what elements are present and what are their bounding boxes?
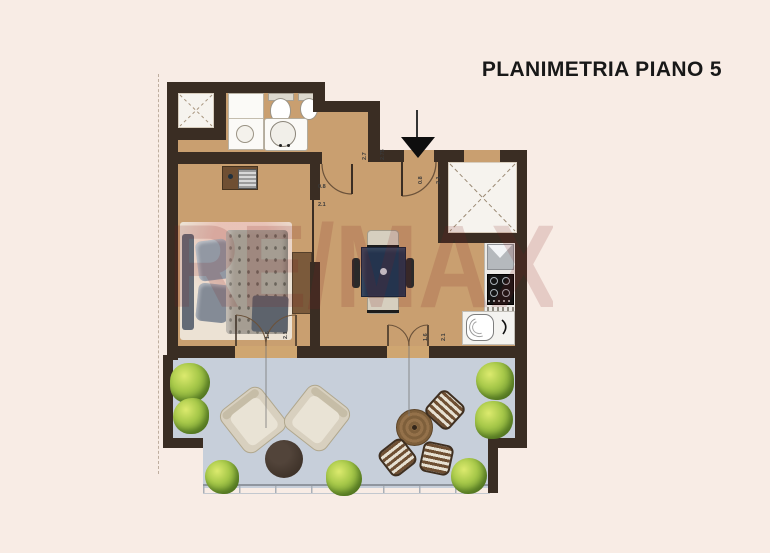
stove-burner-2 — [502, 277, 510, 285]
terrace-floor — [173, 358, 515, 448]
dining-table-centerpiece-dot — [380, 268, 387, 275]
stove-burner-1 — [490, 277, 498, 285]
wall-bottom-a — [167, 346, 235, 358]
washbasin-tap-dot — [279, 144, 282, 147]
dresser-knob-dot — [228, 174, 233, 179]
property-boundary-dashed-line — [158, 74, 159, 474]
elevator-shaft — [448, 162, 517, 233]
wall-closet-bottom — [167, 128, 226, 140]
dim-value: 2.75 — [380, 134, 386, 160]
dining-chair-left-arm — [352, 258, 360, 288]
dim-value: 0.8 — [318, 184, 332, 190]
wall-top-b — [325, 101, 380, 112]
wall-shaft-right — [517, 150, 527, 243]
dim-label-hall: 2.7 2.75 — [350, 134, 398, 160]
wall-terrace-left — [163, 355, 173, 448]
dim-value: 1.6 — [423, 321, 429, 341]
dim-label-living-terrace-door: 1.6 2.1 — [411, 321, 459, 341]
dining-chair-right-arm — [406, 258, 414, 288]
round-table-center-dot — [412, 425, 417, 430]
entrance-arrow-stem — [416, 110, 418, 137]
wall-shaft-bottom — [438, 233, 527, 243]
bush-plant-3 — [205, 460, 239, 494]
dim-label-entry-door: 0.8 2.1 — [406, 164, 454, 184]
wall-terrace-left-step — [163, 438, 203, 448]
vanity-divider-line — [229, 118, 263, 119]
bedroom-terrace-door-sill — [235, 346, 297, 358]
wall-bottom-b — [297, 346, 387, 358]
exterior-notch — [325, 82, 380, 101]
floor-plan-canvas: PLANIMETRIA PIANO 5 — [0, 0, 770, 553]
page-title: PLANIMETRIA PIANO 5 — [430, 58, 722, 82]
dresser-hatch-panel — [238, 169, 257, 189]
chair-bottom-edge-bar — [367, 310, 399, 313]
stove-knob-strip — [488, 300, 513, 302]
vanity-sink-icon — [236, 125, 254, 143]
wall-left — [167, 82, 178, 360]
wall-bathroom-bottom — [178, 152, 322, 164]
bush-plant-5 — [476, 362, 514, 400]
bush-plant-7 — [451, 458, 487, 494]
bedroom-sideboard — [292, 252, 312, 314]
closet-shower-cabin — [178, 93, 214, 128]
bush-plant-2 — [173, 398, 209, 434]
dim-value: 2.1 — [318, 202, 332, 208]
wall-terrace-right-step — [488, 438, 527, 448]
wall-top-step — [313, 82, 325, 112]
stove-burner-4 — [502, 289, 510, 297]
wall-bottom-c — [429, 346, 527, 358]
bush-plant-4 — [326, 460, 362, 496]
dim-value: 1.6 — [265, 319, 271, 339]
dim-value: 2.1 — [436, 164, 442, 184]
terrace-coffee-table — [265, 440, 303, 478]
living-terrace-door-sill — [387, 346, 429, 358]
fridge-wedge — [488, 245, 512, 258]
round-washbasin-icon — [270, 121, 296, 147]
wall-top — [167, 82, 325, 93]
dim-value: 2.7 — [362, 134, 368, 160]
wall-entry-right — [434, 150, 464, 162]
bed-headboard — [182, 234, 194, 330]
wall-closet-right — [214, 82, 226, 128]
wall-partition-lower — [310, 262, 320, 346]
stove-burner-3 — [490, 289, 498, 297]
dim-value: 2.1 — [441, 321, 447, 341]
washbasin-tap-dot2 — [287, 144, 290, 147]
wall-terrace-right-lower — [488, 448, 498, 493]
dim-value: 0.8 — [418, 164, 424, 184]
entrance-arrow-icon — [401, 137, 435, 158]
dim-label-bedroom-terrace-door: 1.6 2.1 — [253, 319, 301, 339]
terrace-chair-3 — [418, 440, 455, 477]
dim-value: 2.1 — [283, 319, 289, 339]
dim-label-interior-door: 0.8 2.1 — [318, 172, 332, 220]
